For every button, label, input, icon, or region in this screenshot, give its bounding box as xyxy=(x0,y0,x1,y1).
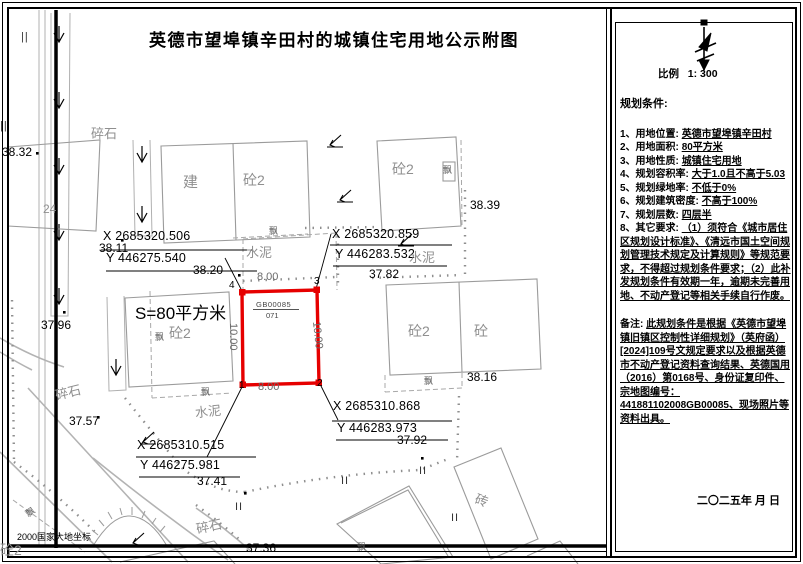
condition-item: 8、其它要求: （1）须符合《城市居住区规划设计标准》、《清远市国土空间规划管理… xyxy=(620,222,792,303)
elevation-label: 37.36 xyxy=(246,542,276,554)
elevation-label: 38.32 xyxy=(2,146,32,158)
surface-label-gravel: 碎石 xyxy=(91,127,117,140)
corner-number-2: 2 xyxy=(317,379,323,389)
corner1-y-coordinate: Y 446275.981 xyxy=(140,459,220,472)
corner2-x-coordinate: X 2685310.868 xyxy=(333,400,420,413)
corner1-x-coordinate: X 2685310.515 xyxy=(137,439,224,452)
condition-item: 1、用地位置: 英德市望埠镇辛田村 xyxy=(620,128,792,142)
elevation-label: 37.82 xyxy=(369,268,399,280)
surface-label-cement: 水泥 xyxy=(409,251,435,264)
corner3-y-coordinate: Y 446283.532 xyxy=(335,248,415,261)
building-label: 砼2 xyxy=(169,326,191,340)
planning-conditions-panel: 规划条件: 1、用地位置: 英德市望埠镇辛田村 2、用地面积: 80平方米 3、… xyxy=(620,98,792,436)
map-title: 英德市望埠镇辛田村的城镇住宅用地公示附图 xyxy=(60,26,608,51)
remarks-paragraph: 备注: 此规划条件是根据《英德市望埠镇旧镇区控制性详细规划》（英府函）[2024… xyxy=(620,318,792,426)
dimension-top: 8.00 xyxy=(257,272,278,283)
grass-symbol: II xyxy=(451,513,459,524)
elevation-label: 38.39 xyxy=(470,199,500,211)
panel-divider-line xyxy=(606,8,607,556)
condition-item: 2、用地面积: 80平方米 xyxy=(620,141,792,155)
parcel-code-fraction-line xyxy=(253,309,299,310)
elevation-label: 38.16 xyxy=(467,371,497,383)
elevation-label: 38.20 xyxy=(193,264,223,276)
grass-symbol: || xyxy=(21,32,29,43)
dimension-left: 10.00 xyxy=(227,323,238,351)
panel-right-line xyxy=(795,8,796,556)
building-label: 建 xyxy=(183,175,198,190)
eaves-symbol: 飘 xyxy=(424,377,433,386)
date-line: 二〇二五年 月 日 xyxy=(620,492,780,508)
building-label: 砼 xyxy=(474,324,488,338)
elevation-label: 37.57 xyxy=(69,415,99,427)
grass-symbol: II xyxy=(419,466,427,477)
eaves-symbol: 飘 xyxy=(443,166,452,175)
elevation-label: 37.92 xyxy=(397,434,427,446)
parcel-code-numerator: GB00085 xyxy=(256,301,291,309)
eaves-symbol: 飘 xyxy=(201,388,210,397)
parcel-code-denominator: 071 xyxy=(266,312,279,320)
condition-item: 5、规划绿地率: 不低于0% xyxy=(620,182,792,196)
eaves-symbol: 飘 xyxy=(269,227,278,236)
scale-value: 1: 300 xyxy=(688,68,718,80)
scale-label: 比例 xyxy=(658,68,679,80)
parcel-area-label: S=80平方米 xyxy=(135,305,226,322)
eaves-symbol: 飘 xyxy=(155,333,164,342)
grass-symbol: || xyxy=(0,121,8,132)
condition-item: 4、规划容积率: 大于1.0且不高于5.03 xyxy=(620,168,792,182)
building-label: 砼2 xyxy=(243,173,265,187)
building-label: 砼2 xyxy=(408,324,430,338)
surface-label-cement: 水泥 xyxy=(246,246,272,259)
scale-bar: 比例 1: 300 xyxy=(658,66,718,81)
building-label: 砼2 xyxy=(0,543,22,557)
geodetic-datum-note: 2000国家大地坐标 xyxy=(17,533,91,542)
corner-number-3: 3 xyxy=(314,277,320,287)
corner3-x-coordinate: X 2685320.859 xyxy=(332,228,419,241)
panel-divider-line xyxy=(610,8,612,556)
plan-sheet: 英德市望埠镇辛田村的城镇住宅用地公示附图 38.32 || || 碎石 24 建… xyxy=(0,0,803,564)
elevation-label: 37.41 xyxy=(197,475,227,487)
panel-heading: 规划条件: xyxy=(620,98,792,112)
corner4-y-coordinate: Y 446275.540 xyxy=(106,252,186,265)
dimension-bottom: 8.00 xyxy=(258,382,279,393)
corner-number-1: 1 xyxy=(239,381,245,391)
house-number: 24 xyxy=(43,203,56,215)
condition-item: 7、规划层数: 四层半 xyxy=(620,209,792,223)
grass-symbol: II xyxy=(341,476,349,487)
corner-number-4: 4 xyxy=(229,281,235,291)
eaves-symbol: 飘 xyxy=(357,543,366,552)
dimension-right: 10.00 xyxy=(310,321,324,350)
building-label: 砼2 xyxy=(392,162,414,176)
condition-item: 3、用地性质: 城镇住宅用地 xyxy=(620,155,792,169)
grass-symbol: II xyxy=(235,502,243,513)
elevation-label: 37.96 xyxy=(41,319,71,331)
condition-item: 6、规划建筑密度: 不高于100% xyxy=(620,195,792,209)
surface-label-cement: 水泥 xyxy=(194,404,221,420)
